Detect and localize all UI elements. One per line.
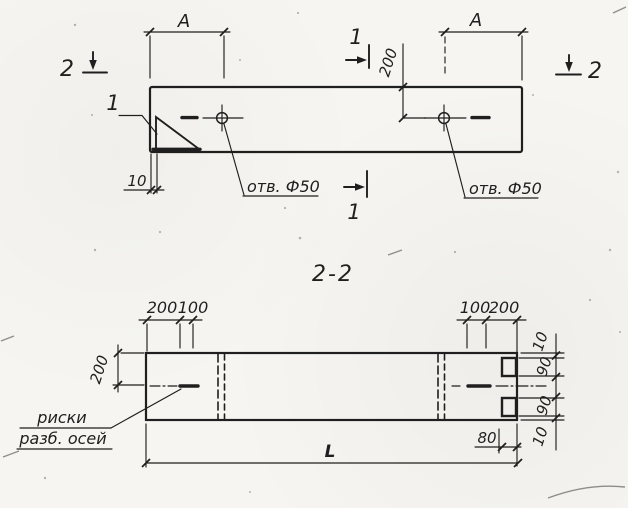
dim-200-top-view: 200 xyxy=(375,44,426,122)
section-title: 2-2 xyxy=(312,262,354,287)
speck xyxy=(619,331,621,333)
dim-80: 80 xyxy=(475,424,521,466)
dim-80-label: 80 xyxy=(477,429,496,447)
speck xyxy=(284,207,286,209)
stray-mark xyxy=(3,451,19,457)
axis-marks-label-line2: разб. осей xyxy=(18,429,106,448)
speck xyxy=(44,477,46,479)
hole-label-right: отв. Ф50 xyxy=(469,179,542,198)
stray-curve xyxy=(548,486,625,498)
detail-mark-label: 1 xyxy=(106,91,119,115)
speck xyxy=(454,251,456,253)
dim-200-label: 200 xyxy=(489,298,520,317)
dim-a-right: А xyxy=(439,10,528,80)
speck xyxy=(159,231,161,233)
dim-top-left-chain: 200 100 xyxy=(139,298,208,351)
blueprint-page: 1 А xyxy=(0,0,628,508)
section-arrow-right-icon xyxy=(357,56,367,64)
section-mark-1-top: 1 xyxy=(346,25,369,68)
section-arrow-right-icon xyxy=(355,183,365,191)
section-mark-2-right: 2 xyxy=(556,55,604,84)
speck xyxy=(589,299,591,301)
dim-100-label: 100 xyxy=(178,298,209,317)
speck xyxy=(532,94,534,96)
section-1-top-label: 1 xyxy=(349,25,362,49)
dim-200-label: 200 xyxy=(375,46,401,79)
section-arrow-down-icon xyxy=(89,60,97,70)
dim-10-top-label: 10 xyxy=(529,330,552,354)
dim-top-right-chain: 100 200 xyxy=(457,298,526,352)
dim-a-left: А xyxy=(144,11,230,78)
end-slot-top xyxy=(502,358,516,376)
axis-marks-label-line1: риски xyxy=(36,408,86,427)
section-2-right-label: 2 xyxy=(588,59,604,84)
dim-200-left: 200 xyxy=(86,345,144,392)
end-slot-bottom xyxy=(502,398,516,416)
stray-mark xyxy=(1,336,14,341)
corner-detail-triangle xyxy=(156,117,199,149)
dim-10-bottom-label: 10 xyxy=(529,425,552,449)
hole-right xyxy=(424,105,466,131)
dim-right-stack: 10 90 90 10 xyxy=(519,330,564,450)
dim-200-label: 200 xyxy=(147,298,178,317)
hole-callout-right: отв. Ф50 xyxy=(446,124,542,198)
leader-line xyxy=(446,124,465,197)
dim-l-label: L xyxy=(325,442,336,462)
leader-line xyxy=(224,124,244,195)
section-mark-1-bottom: 1 xyxy=(344,171,367,224)
drawing-canvas: 1 А xyxy=(0,0,628,508)
top-view: 1 А xyxy=(60,10,604,224)
speck xyxy=(91,114,93,116)
stray-mark xyxy=(388,250,402,255)
section-mark-2-left: 2 xyxy=(60,52,107,82)
section-1-bottom-label: 1 xyxy=(347,200,360,224)
hole-left xyxy=(203,105,243,131)
section-view: 2-2 200 100 xyxy=(17,262,564,467)
dim-90-bottom-label: 90 xyxy=(533,394,556,418)
speck xyxy=(239,59,241,61)
scan-noise xyxy=(1,7,626,498)
speck xyxy=(609,249,611,251)
dim-a-left-label: А xyxy=(177,11,190,32)
dim-200-left-label: 200 xyxy=(86,353,112,386)
detail-mark-leader xyxy=(119,116,157,135)
beam-outline-plan xyxy=(150,87,522,152)
speck xyxy=(249,491,251,493)
dim-a-right-label: А xyxy=(469,10,482,31)
speck xyxy=(74,24,76,26)
dim-l: L xyxy=(142,424,522,467)
speck xyxy=(299,237,302,240)
speck xyxy=(617,171,619,173)
section-arrow-down-icon xyxy=(565,62,573,72)
section-2-left-label: 2 xyxy=(60,57,76,82)
dim-100-label: 100 xyxy=(460,298,491,317)
speck xyxy=(297,12,299,14)
dim-10: 10 xyxy=(124,154,164,194)
dim-10-label: 10 xyxy=(127,172,146,190)
speck xyxy=(94,249,96,251)
hole-label-left: отв. Ф50 xyxy=(247,177,320,196)
beam-outline-section xyxy=(146,353,517,420)
hole-callout-left: отв. Ф50 xyxy=(224,124,320,196)
stray-mark xyxy=(613,7,626,13)
